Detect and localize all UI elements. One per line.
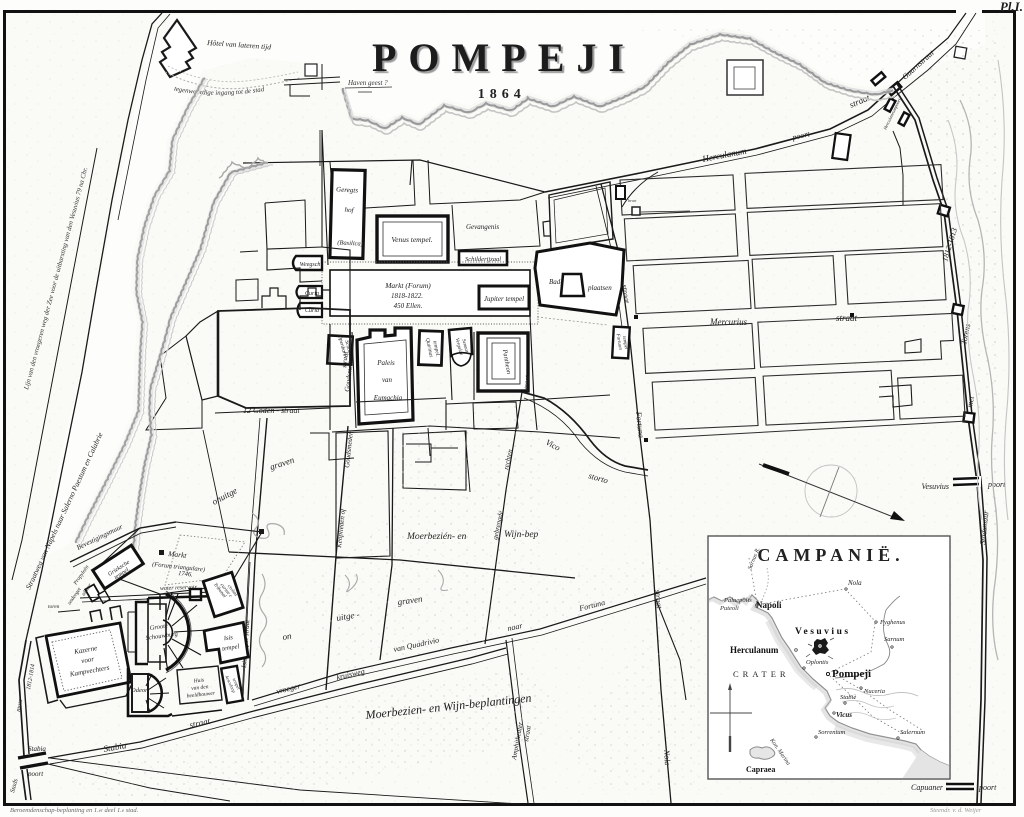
svg-text:Napoli: Napoli — [756, 600, 782, 610]
svg-text:Geregts: Geregts — [336, 185, 359, 194]
svg-text:bron: bron — [628, 198, 637, 203]
svg-text:Huis: Huis — [192, 677, 204, 684]
svg-text:CAMPANIË.: CAMPANIË. — [757, 545, 904, 565]
svg-text:Isis: Isis — [222, 634, 233, 642]
svg-text:Pompeji: Pompeji — [832, 668, 871, 680]
svg-text:Puteoli: Puteoli — [719, 605, 739, 612]
svg-text:Nola: Nola — [847, 579, 862, 587]
svg-text:POMPEJI: POMPEJI — [372, 35, 636, 80]
svg-text:1818-1822.: 1818-1822. — [391, 292, 423, 300]
svg-text:poort: poort — [27, 770, 44, 778]
svg-text:Sarnum: Sarnum — [884, 636, 905, 643]
svg-text:Haven geest ?: Haven geest ? — [347, 79, 388, 87]
svg-text:straat: straat — [522, 374, 531, 392]
svg-text:Palaepolis: Palaepolis — [723, 597, 752, 604]
svg-text:Vicus: Vicus — [836, 711, 852, 719]
svg-text:Venus tempel.: Venus tempel. — [391, 235, 432, 244]
svg-text:Stabiè: Stabiè — [840, 694, 856, 701]
svg-text:Steendr. v. d. Weijer: Steendr. v. d. Weijer — [930, 807, 982, 814]
svg-text:Capraea: Capraea — [746, 765, 775, 774]
svg-text:Paleis: Paleis — [376, 359, 395, 367]
svg-text:Mercurius: Mercurius — [709, 317, 748, 327]
svg-text:Salernum: Salernum — [900, 729, 925, 736]
svg-text:Vesuvius: Vesuvius — [795, 627, 851, 637]
svg-text:Vesuvius: Vesuvius — [921, 482, 949, 491]
svg-text:Bad-: Bad- — [549, 278, 563, 286]
svg-text:Schilderijzaal: Schilderijzaal — [465, 256, 501, 263]
svg-text:Odeon: Odeon — [131, 687, 148, 694]
svg-text:Oplontis: Oplontis — [806, 659, 829, 666]
svg-text:Nuceria: Nuceria — [863, 688, 885, 695]
svg-text:Fyghenus: Fyghenus — [879, 619, 906, 626]
svg-text:Stabia: Stabia — [28, 745, 46, 753]
svg-text:Gevangenis: Gevangenis — [466, 223, 499, 231]
svg-text:Jupiter tempel: Jupiter tempel — [484, 295, 524, 303]
svg-text:poort: poort — [978, 783, 997, 792]
svg-text:Weegsch: Weegsch — [300, 262, 321, 268]
svg-text:Pl.I.: Pl.I. — [1000, 0, 1023, 14]
svg-text:toren: toren — [48, 604, 60, 610]
svg-text:Capuaner: Capuaner — [911, 783, 944, 792]
svg-text:Herculanum: Herculanum — [730, 645, 779, 655]
svg-text:plaatsen: plaatsen — [587, 284, 612, 292]
svg-text:Sorrentum: Sorrentum — [818, 729, 846, 736]
svg-text:(Basilica): (Basilica) — [337, 239, 363, 247]
svg-text:CRATER: CRATER — [733, 669, 790, 679]
svg-text:straat: straat — [836, 313, 858, 323]
svg-text:450 Ellen.: 450 Ellen. — [394, 302, 423, 310]
svg-text:van: van — [382, 376, 393, 384]
svg-text:Markt (Forum): Markt (Forum) — [384, 281, 431, 290]
svg-text:Beroemdenschap-beplanting en 1: Beroemdenschap-beplanting en 1.er deel 1… — [10, 807, 139, 814]
svg-text:hof: hof — [344, 206, 354, 215]
